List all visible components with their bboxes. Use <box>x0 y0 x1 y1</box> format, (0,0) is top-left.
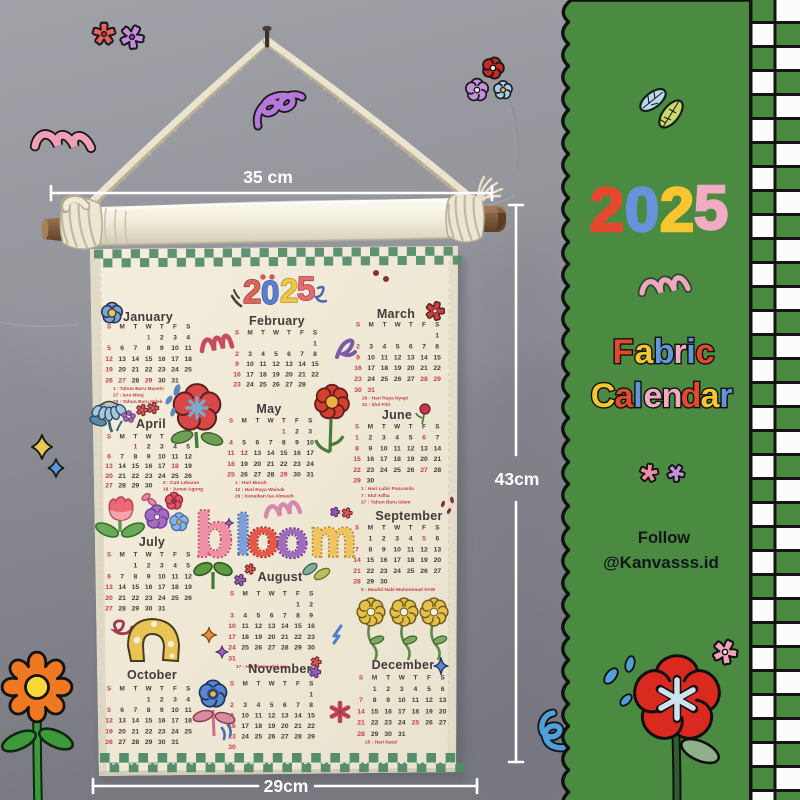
svg-text:17: 17 <box>380 456 388 463</box>
svg-text:18: 18 <box>381 365 389 372</box>
svg-text:18: 18 <box>171 584 179 591</box>
svg-text:8: 8 <box>373 697 377 704</box>
svg-text:26: 26 <box>272 382 280 389</box>
svg-text:5: 5 <box>694 174 728 243</box>
svg-text:T: T <box>283 591 287 598</box>
svg-text:19: 19 <box>394 365 402 372</box>
svg-text:1: 1 <box>313 341 317 348</box>
svg-text:28: 28 <box>357 731 365 738</box>
svg-text:15: 15 <box>145 356 153 363</box>
svg-text:2: 2 <box>160 697 164 704</box>
svg-text:22: 22 <box>280 461 288 468</box>
svg-text:13: 13 <box>420 445 428 452</box>
svg-text:2: 2 <box>660 176 694 245</box>
svg-text:11: 11 <box>407 546 414 553</box>
svg-text:M: M <box>120 686 125 693</box>
svg-text:22: 22 <box>371 720 379 727</box>
svg-text:29: 29 <box>433 376 441 383</box>
svg-text:7: 7 <box>120 573 124 580</box>
svg-text:17: 17 <box>246 371 254 378</box>
svg-text:a: a <box>701 377 721 415</box>
svg-text:2: 2 <box>295 429 299 436</box>
svg-text:S: S <box>309 681 314 688</box>
svg-text:11: 11 <box>394 445 401 452</box>
svg-text:F: F <box>613 333 634 371</box>
svg-text:23: 23 <box>233 382 241 389</box>
svg-text:19: 19 <box>240 461 248 468</box>
svg-text:1: 1 <box>355 435 359 442</box>
svg-text:17: 17 <box>228 634 236 641</box>
svg-text:3: 3 <box>308 429 312 436</box>
svg-text:7: 7 <box>269 439 273 446</box>
svg-text:24: 24 <box>228 645 236 652</box>
svg-text:29: 29 <box>132 606 140 613</box>
svg-text:9: 9 <box>386 697 390 704</box>
svg-text:21: 21 <box>353 568 361 575</box>
svg-text:29cm: 29cm <box>264 776 309 796</box>
svg-text:5: 5 <box>270 702 274 709</box>
svg-text:9: 9 <box>160 707 164 714</box>
svg-text:26: 26 <box>184 473 192 480</box>
svg-text:1 : Hari Buruh: 1 : Hari Buruh <box>235 480 267 486</box>
svg-text:2: 2 <box>382 536 386 543</box>
svg-text:26: 26 <box>184 595 192 602</box>
svg-text:15: 15 <box>367 557 375 564</box>
svg-text:3: 3 <box>173 335 177 342</box>
svg-text:10: 10 <box>228 623 236 630</box>
svg-text:6: 6 <box>441 686 445 693</box>
svg-text:4: 4 <box>395 435 399 442</box>
svg-text:21: 21 <box>298 371 306 378</box>
svg-text:18: 18 <box>255 723 263 730</box>
svg-text:20: 20 <box>118 728 126 735</box>
svg-text:12: 12 <box>394 354 402 361</box>
svg-text:2: 2 <box>235 351 239 358</box>
svg-text:M: M <box>120 324 125 331</box>
svg-text:16: 16 <box>233 371 241 378</box>
svg-text:1: 1 <box>134 563 138 570</box>
svg-text:n: n <box>662 377 683 415</box>
svg-text:W: W <box>146 552 153 559</box>
svg-text:20: 20 <box>281 723 289 730</box>
svg-text:W: W <box>399 675 406 682</box>
svg-text:T: T <box>409 322 413 329</box>
svg-text:1: 1 <box>147 697 151 704</box>
svg-text:1: 1 <box>373 686 377 693</box>
svg-text:17: 17 <box>393 557 401 564</box>
svg-text:24: 24 <box>380 467 388 474</box>
svg-text:19: 19 <box>255 634 263 641</box>
svg-text:S: S <box>440 675 445 682</box>
svg-text:22: 22 <box>145 728 153 735</box>
svg-text:20: 20 <box>407 365 415 372</box>
svg-text:April: April <box>136 417 166 431</box>
svg-text:19: 19 <box>184 463 192 470</box>
svg-text:@Kanvasss.id: @Kanvasss.id <box>603 553 719 572</box>
svg-text:22: 22 <box>294 634 302 641</box>
svg-text:F: F <box>422 525 426 532</box>
svg-text:b: b <box>654 333 675 371</box>
svg-text:8: 8 <box>147 707 151 714</box>
svg-text:12: 12 <box>105 718 113 725</box>
svg-text:T: T <box>160 324 164 331</box>
svg-text:27: 27 <box>285 382 293 389</box>
svg-text:5: 5 <box>186 563 190 570</box>
svg-text:January: January <box>123 310 173 324</box>
svg-text:10: 10 <box>171 707 179 714</box>
svg-text:S: S <box>230 681 235 688</box>
svg-text:17: 17 <box>367 365 375 372</box>
svg-text:20: 20 <box>254 461 262 468</box>
svg-text:25: 25 <box>412 720 420 727</box>
svg-text:S: S <box>313 330 318 337</box>
svg-text:S: S <box>229 418 234 425</box>
svg-text:26: 26 <box>394 376 402 383</box>
svg-text:e: e <box>644 377 663 415</box>
svg-text:M: M <box>369 322 374 329</box>
svg-text:T: T <box>409 525 413 532</box>
svg-text:2: 2 <box>230 702 234 709</box>
svg-text:18: 18 <box>184 356 192 363</box>
svg-text:12: 12 <box>272 361 280 368</box>
svg-text:W: W <box>146 324 153 331</box>
svg-text:T: T <box>386 675 390 682</box>
svg-text:16: 16 <box>145 463 153 470</box>
svg-text:4: 4 <box>414 686 418 693</box>
svg-text:3: 3 <box>382 435 386 442</box>
svg-text:27 : Isra Miraj: 27 : Isra Miraj <box>113 392 144 398</box>
svg-text:12: 12 <box>255 623 263 630</box>
svg-text:9: 9 <box>382 546 386 553</box>
svg-text:o: o <box>276 511 308 569</box>
svg-text:14: 14 <box>132 718 140 725</box>
svg-text:28: 28 <box>132 739 140 746</box>
svg-text:28: 28 <box>281 645 289 652</box>
svg-text:F: F <box>422 424 426 431</box>
svg-text:F: F <box>422 322 426 329</box>
svg-text:M: M <box>368 424 373 431</box>
svg-text:11: 11 <box>171 573 178 580</box>
svg-text:8: 8 <box>134 453 138 460</box>
svg-text:16: 16 <box>380 557 388 564</box>
svg-text:21: 21 <box>267 461 275 468</box>
svg-text:2: 2 <box>369 435 373 442</box>
svg-text:M: M <box>372 675 377 682</box>
svg-text:14: 14 <box>294 713 302 720</box>
svg-text:26: 26 <box>255 645 263 652</box>
svg-text:6: 6 <box>409 343 413 350</box>
svg-text:11: 11 <box>185 707 192 714</box>
svg-text:30: 30 <box>145 483 153 490</box>
svg-text:15: 15 <box>132 463 140 470</box>
svg-text:30: 30 <box>307 645 315 652</box>
svg-text:14: 14 <box>420 354 428 361</box>
svg-text:9: 9 <box>235 361 239 368</box>
svg-text:20: 20 <box>420 456 428 463</box>
svg-text:28: 28 <box>298 382 306 389</box>
svg-text:F: F <box>173 552 177 559</box>
svg-text:T: T <box>282 418 286 425</box>
svg-text:W: W <box>273 330 280 337</box>
svg-text:21: 21 <box>420 365 428 372</box>
svg-text:28: 28 <box>294 734 302 741</box>
svg-text:1: 1 <box>282 429 286 436</box>
svg-text:12: 12 <box>420 546 428 553</box>
svg-text:30: 30 <box>158 377 166 384</box>
svg-text:9: 9 <box>147 573 151 580</box>
svg-text:28: 28 <box>118 483 126 490</box>
svg-text:43cm: 43cm <box>495 469 540 489</box>
svg-text:17: 17 <box>306 450 314 457</box>
svg-text:M: M <box>120 434 125 441</box>
svg-text:W: W <box>394 525 401 532</box>
svg-text:2: 2 <box>160 335 164 342</box>
svg-text:1: 1 <box>134 444 138 451</box>
svg-text:13: 13 <box>281 713 289 720</box>
svg-text:1: 1 <box>296 602 300 609</box>
svg-text:4: 4 <box>261 351 265 358</box>
svg-text:22: 22 <box>311 371 319 378</box>
svg-text:3: 3 <box>243 702 247 709</box>
svg-text:8: 8 <box>296 612 300 619</box>
svg-text:8: 8 <box>309 702 313 709</box>
svg-text:S: S <box>230 591 235 598</box>
svg-text:16: 16 <box>158 718 166 725</box>
svg-text:21: 21 <box>357 720 365 727</box>
svg-text:29: 29 <box>145 377 153 384</box>
svg-text:M: M <box>243 591 248 598</box>
svg-text:7: 7 <box>436 435 440 442</box>
svg-text:24: 24 <box>246 382 254 389</box>
svg-text:15: 15 <box>433 354 441 361</box>
svg-text:6: 6 <box>107 453 111 460</box>
svg-text:l: l <box>633 377 642 415</box>
svg-text:16: 16 <box>354 365 362 372</box>
svg-text:30: 30 <box>380 579 388 586</box>
svg-text:S: S <box>355 424 360 431</box>
svg-text:26: 26 <box>240 472 248 479</box>
svg-text:23: 23 <box>158 367 166 374</box>
svg-text:10: 10 <box>158 453 166 460</box>
svg-text:2: 2 <box>386 686 390 693</box>
svg-text:a: a <box>635 333 655 371</box>
svg-text:May: May <box>256 402 281 416</box>
svg-text:5: 5 <box>242 439 246 446</box>
svg-text:T: T <box>283 681 287 688</box>
svg-text:26: 26 <box>425 720 433 727</box>
svg-text:25: 25 <box>171 473 179 480</box>
svg-text:T: T <box>256 591 260 598</box>
svg-text:10: 10 <box>398 697 406 704</box>
svg-text:T: T <box>261 330 265 337</box>
svg-text:14: 14 <box>281 623 289 630</box>
svg-text:7: 7 <box>283 612 287 619</box>
svg-text:12: 12 <box>407 445 415 452</box>
svg-text:December: December <box>372 658 435 672</box>
svg-text:6: 6 <box>270 612 274 619</box>
svg-text:19: 19 <box>420 557 428 564</box>
svg-text:S: S <box>107 552 112 559</box>
svg-text:W: W <box>394 424 401 431</box>
svg-text:27: 27 <box>105 483 113 490</box>
svg-text:22: 22 <box>132 595 140 602</box>
svg-text:31: 31 <box>228 656 236 663</box>
svg-text:7: 7 <box>120 453 124 460</box>
svg-text:16: 16 <box>158 356 166 363</box>
svg-text:2: 2 <box>147 444 151 451</box>
svg-text:F: F <box>173 324 177 331</box>
svg-text:25: 25 <box>184 728 192 735</box>
svg-text:20: 20 <box>118 367 126 374</box>
svg-text:28: 28 <box>434 467 442 474</box>
svg-text:12: 12 <box>425 697 433 704</box>
svg-text:5: 5 <box>107 707 111 714</box>
svg-text:28: 28 <box>118 606 126 613</box>
svg-text:13: 13 <box>254 450 262 457</box>
svg-text:7: 7 <box>134 707 138 714</box>
svg-text:18 : Jumat Agung: 18 : Jumat Agung <box>163 487 203 493</box>
svg-text:18: 18 <box>227 461 235 468</box>
svg-text:18: 18 <box>184 718 192 725</box>
svg-text:5: 5 <box>409 435 413 442</box>
svg-text:7: 7 <box>300 351 304 358</box>
svg-text:T: T <box>160 434 164 441</box>
svg-text:Follow: Follow <box>638 529 690 547</box>
svg-text:c: c <box>696 333 715 371</box>
svg-text:22: 22 <box>353 467 361 474</box>
svg-text:1: 1 <box>435 333 439 340</box>
svg-text:5: 5 <box>396 343 400 350</box>
svg-text:T: T <box>413 675 417 682</box>
svg-text:27: 27 <box>420 467 428 474</box>
svg-text:27: 27 <box>407 376 415 383</box>
svg-text:20: 20 <box>434 557 442 564</box>
svg-text:16: 16 <box>145 584 153 591</box>
svg-text:29: 29 <box>353 478 361 485</box>
svg-text:T: T <box>160 686 164 693</box>
svg-text:November: November <box>248 662 312 676</box>
svg-text:12: 12 <box>240 450 248 457</box>
svg-text:September: September <box>375 509 442 523</box>
svg-text:F: F <box>427 675 431 682</box>
svg-text:30: 30 <box>354 387 362 394</box>
svg-text:11: 11 <box>185 345 192 352</box>
svg-text:b: b <box>195 501 233 570</box>
svg-text:o: o <box>247 510 279 568</box>
svg-text:25: 25 <box>407 568 415 575</box>
svg-text:17: 17 <box>171 356 179 363</box>
svg-text:10: 10 <box>367 354 375 361</box>
svg-text:21: 21 <box>294 723 302 730</box>
svg-text:26: 26 <box>420 568 428 575</box>
svg-text:M: M <box>242 418 247 425</box>
svg-text:20: 20 <box>285 371 293 378</box>
svg-text:14: 14 <box>132 356 140 363</box>
svg-text:r: r <box>673 333 686 371</box>
svg-text:15: 15 <box>311 361 319 368</box>
svg-text:23: 23 <box>367 467 375 474</box>
svg-text:28: 28 <box>420 376 428 383</box>
svg-text:14: 14 <box>267 450 275 457</box>
svg-text:7: 7 <box>134 345 138 352</box>
svg-text:19: 19 <box>268 723 276 730</box>
svg-text:4: 4 <box>173 563 177 570</box>
svg-text:25: 25 <box>393 467 401 474</box>
svg-text:20: 20 <box>105 473 113 480</box>
svg-text:22: 22 <box>307 723 315 730</box>
svg-text:d: d <box>681 377 702 415</box>
svg-text:9: 9 <box>369 445 373 452</box>
svg-text:6: 6 <box>256 439 260 446</box>
svg-text:14: 14 <box>434 445 442 452</box>
svg-text:3: 3 <box>400 686 404 693</box>
svg-text:11: 11 <box>381 354 388 361</box>
svg-text:5: 5 <box>274 351 278 358</box>
svg-text:29: 29 <box>371 731 379 738</box>
svg-text:15: 15 <box>307 713 315 720</box>
svg-text:25: 25 <box>184 367 192 374</box>
svg-text:9: 9 <box>356 354 360 361</box>
svg-text:3: 3 <box>230 612 234 619</box>
svg-text:19: 19 <box>184 584 192 591</box>
svg-text:T: T <box>287 330 291 337</box>
svg-text:F: F <box>300 330 304 337</box>
svg-text:27: 27 <box>281 734 289 741</box>
svg-text:18: 18 <box>407 557 415 564</box>
svg-text:15: 15 <box>280 450 288 457</box>
svg-text:4: 4 <box>409 536 413 543</box>
svg-text:29: 29 <box>294 645 302 652</box>
svg-text:4: 4 <box>186 335 190 342</box>
svg-text:T: T <box>133 552 137 559</box>
svg-text:23: 23 <box>145 473 153 480</box>
svg-text:4: 4 <box>173 444 177 451</box>
svg-text:M: M <box>368 525 373 532</box>
svg-text:12 : Hari Raya Waisak: 12 : Hari Raya Waisak <box>235 487 285 493</box>
svg-text:23: 23 <box>145 595 153 602</box>
svg-text:5: 5 <box>297 270 315 307</box>
svg-text:24: 24 <box>367 376 375 383</box>
svg-text:29 : Kenaikan Isa Almasih: 29 : Kenaikan Isa Almasih <box>235 493 294 499</box>
svg-text:10: 10 <box>158 573 166 580</box>
svg-text:July: July <box>139 535 165 549</box>
svg-text:6: 6 <box>287 351 291 358</box>
svg-text:24: 24 <box>393 568 401 575</box>
svg-text:21: 21 <box>118 595 126 602</box>
svg-text:31: 31 <box>398 731 406 738</box>
svg-text:8: 8 <box>369 546 373 553</box>
svg-text:5: 5 <box>427 686 431 693</box>
svg-text:31: 31 <box>306 472 314 479</box>
svg-text:11: 11 <box>259 361 266 368</box>
svg-text:25: 25 <box>241 645 249 652</box>
svg-text:2: 2 <box>280 272 298 309</box>
svg-text:12: 12 <box>105 356 113 363</box>
svg-text:T: T <box>382 424 386 431</box>
svg-text:8: 8 <box>313 351 317 358</box>
svg-text:3: 3 <box>395 536 399 543</box>
svg-text:S: S <box>435 424 440 431</box>
svg-text:10: 10 <box>393 546 401 553</box>
svg-text:8: 8 <box>134 573 138 580</box>
svg-text:6: 6 <box>422 435 426 442</box>
svg-text:5 : Maulid Nabi Muhammad SAW: 5 : Maulid Nabi Muhammad SAW <box>361 587 436 593</box>
svg-text:21: 21 <box>132 367 140 374</box>
svg-text:29: 29 <box>367 579 375 586</box>
svg-text:30: 30 <box>293 472 301 479</box>
svg-text:6: 6 <box>436 536 440 543</box>
svg-text:March: March <box>377 307 415 321</box>
